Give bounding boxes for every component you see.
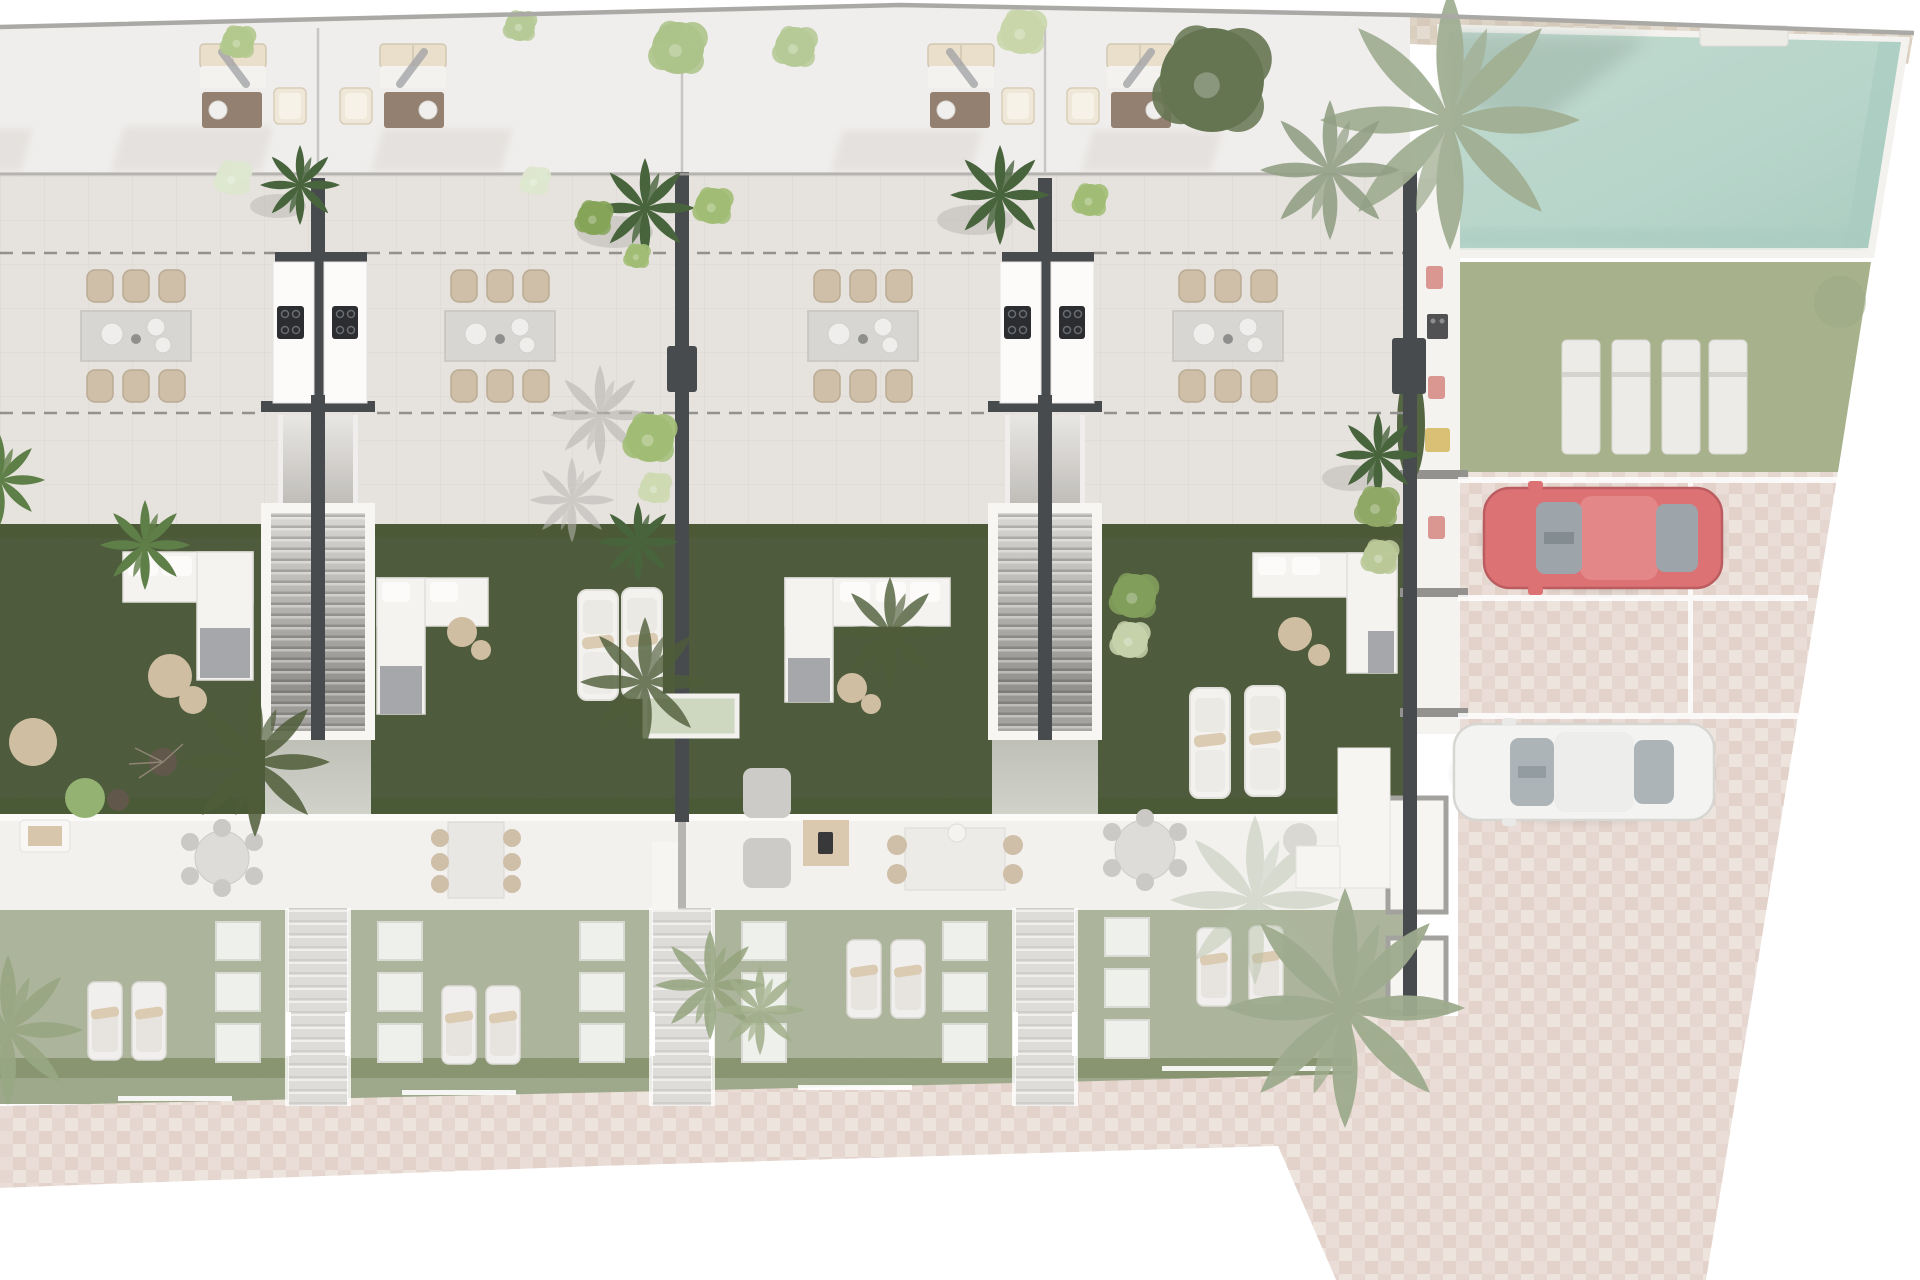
site-boundary xyxy=(0,0,1920,1280)
site-plan-svg xyxy=(0,0,1920,1280)
render-wash xyxy=(0,0,1920,1280)
site-plan-canvas xyxy=(0,0,1920,1280)
